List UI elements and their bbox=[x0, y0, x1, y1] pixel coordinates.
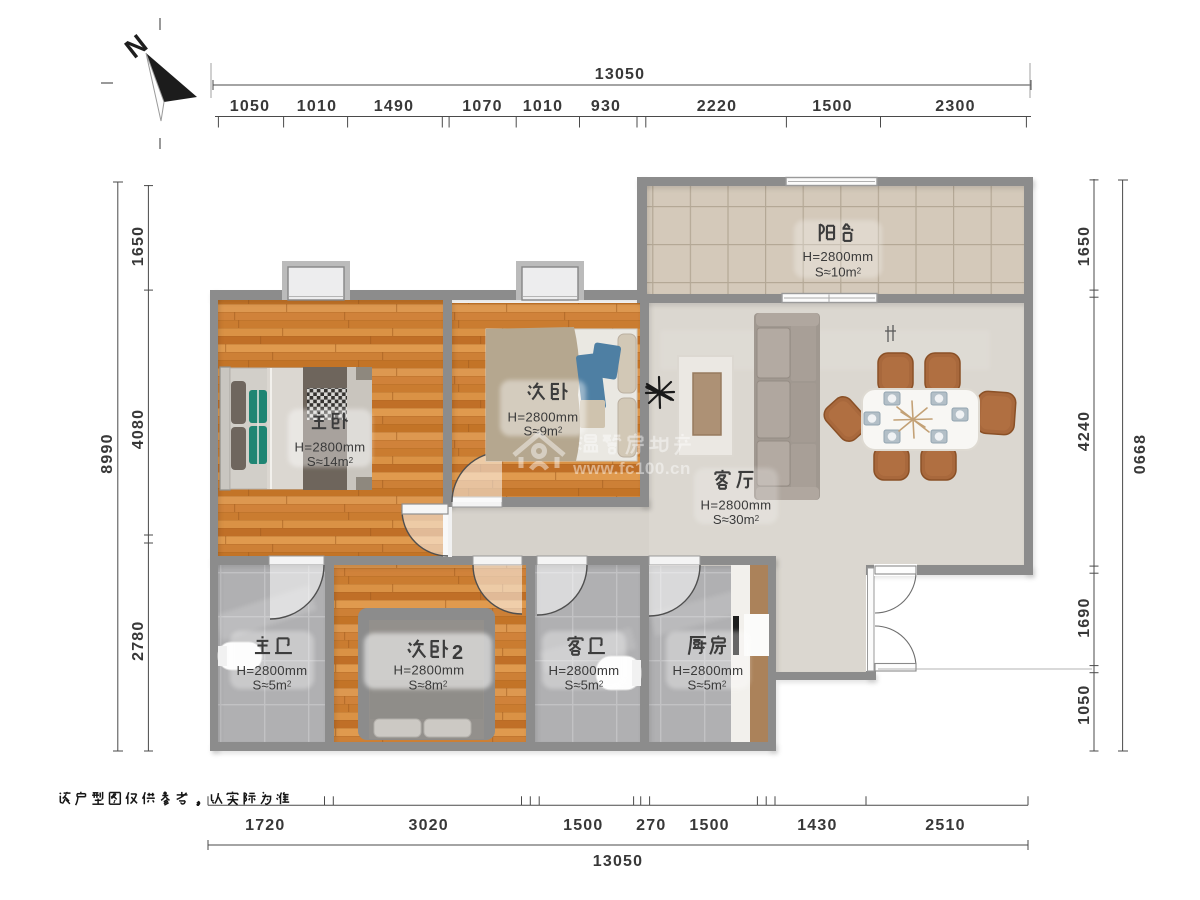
svg-text:13050: 13050 bbox=[595, 66, 646, 83]
svg-text:S≈5m2: S≈5m2 bbox=[253, 678, 292, 693]
svg-text:1050: 1050 bbox=[1076, 684, 1093, 724]
svg-text:2: 2 bbox=[452, 642, 463, 664]
svg-text:S≈5m2: S≈5m2 bbox=[565, 678, 604, 693]
svg-text:S≈14m2: S≈14m2 bbox=[307, 454, 354, 469]
svg-text:270: 270 bbox=[636, 817, 666, 834]
svg-text:H=2800mm: H=2800mm bbox=[237, 663, 308, 678]
svg-text:S≈10m2: S≈10m2 bbox=[815, 265, 862, 280]
svg-text:2300: 2300 bbox=[935, 98, 975, 115]
svg-text:1690: 1690 bbox=[1076, 597, 1093, 637]
svg-text:1490: 1490 bbox=[374, 98, 414, 115]
svg-text:2780: 2780 bbox=[130, 620, 147, 660]
svg-text:1650: 1650 bbox=[1076, 226, 1093, 266]
svg-text:13050: 13050 bbox=[593, 853, 644, 870]
svg-text:1720: 1720 bbox=[245, 817, 285, 834]
svg-text:1500: 1500 bbox=[563, 817, 603, 834]
svg-text:H=2800mm: H=2800mm bbox=[549, 663, 620, 678]
svg-text:www.fc100.cn: www.fc100.cn bbox=[572, 459, 691, 478]
svg-text:S≈30m2: S≈30m2 bbox=[713, 512, 760, 527]
svg-text:8990: 8990 bbox=[99, 433, 116, 473]
svg-text:1070: 1070 bbox=[462, 98, 502, 115]
svg-text:1650: 1650 bbox=[130, 226, 147, 266]
svg-text:H=2800mm: H=2800mm bbox=[508, 410, 579, 425]
svg-text:1050: 1050 bbox=[230, 98, 270, 115]
svg-text:H=2800mm: H=2800mm bbox=[701, 498, 772, 513]
svg-text:S≈8m2: S≈8m2 bbox=[409, 678, 448, 693]
svg-text:H=2800mm: H=2800mm bbox=[673, 663, 744, 678]
svg-text:0668: 0668 bbox=[1132, 434, 1149, 474]
svg-text:2510: 2510 bbox=[925, 817, 965, 834]
svg-text:1010: 1010 bbox=[523, 98, 563, 115]
svg-text:930: 930 bbox=[591, 98, 621, 115]
svg-text:2220: 2220 bbox=[697, 98, 737, 115]
svg-text:H=2800mm: H=2800mm bbox=[295, 440, 366, 455]
svg-text:H=2800mm: H=2800mm bbox=[394, 663, 465, 678]
svg-text:1500: 1500 bbox=[812, 98, 852, 115]
svg-text:3020: 3020 bbox=[408, 817, 448, 834]
svg-text:1010: 1010 bbox=[297, 98, 337, 115]
svg-text:H=2800mm: H=2800mm bbox=[803, 249, 874, 264]
svg-text:1430: 1430 bbox=[797, 817, 837, 834]
svg-text:1500: 1500 bbox=[689, 817, 729, 834]
svg-text:4240: 4240 bbox=[1076, 411, 1093, 451]
svg-text:4080: 4080 bbox=[130, 409, 147, 449]
svg-text:S≈5m2: S≈5m2 bbox=[688, 678, 727, 693]
